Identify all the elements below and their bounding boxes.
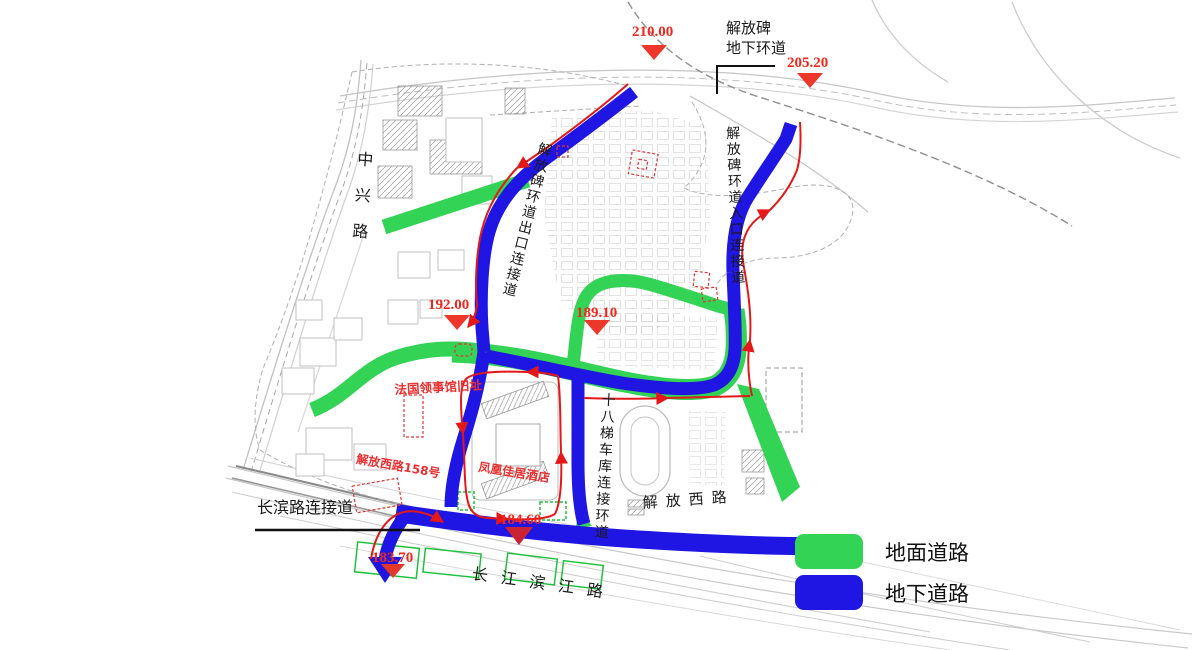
- legend-row-underground: 地下道路: [795, 575, 969, 610]
- legend: 地面道路 地下道路: [795, 534, 969, 616]
- legend-row-ground: 地面道路: [795, 534, 969, 569]
- ground-road-swatch-icon: [795, 534, 863, 569]
- elevation-triangle-icon: [444, 315, 470, 330]
- label-line1: 解放碑: [726, 18, 786, 38]
- legend-ground-label: 地面道路: [885, 537, 969, 567]
- label-changbin-connector: 长滨路连接道: [257, 494, 353, 518]
- elevation-value-210: 210.00: [632, 24, 673, 41]
- label-line2: 地下环道: [726, 38, 786, 58]
- elevation-triangle-icon: [584, 320, 610, 335]
- elevation-value-192: 192.00: [428, 297, 469, 314]
- elevation-triangle-icon: [641, 45, 667, 60]
- elevation-triangle-icon: [797, 73, 823, 88]
- underground-bottom-band: [396, 513, 844, 546]
- legend-underground-label: 地下道路: [885, 578, 969, 608]
- elevation-value-205: 205.20: [787, 55, 828, 72]
- elevation-triangle-icon: [381, 564, 405, 578]
- label-jiefangbei-underground-ring: 解放碑 地下环道: [726, 18, 786, 59]
- site-plan: 210.00 205.20 192.00 189.10 184.60 183.7…: [0, 0, 1200, 650]
- underground-garage-loop: [578, 380, 584, 524]
- underground-road-swatch-icon: [795, 575, 863, 610]
- elevation-triangle-icon: [505, 527, 533, 545]
